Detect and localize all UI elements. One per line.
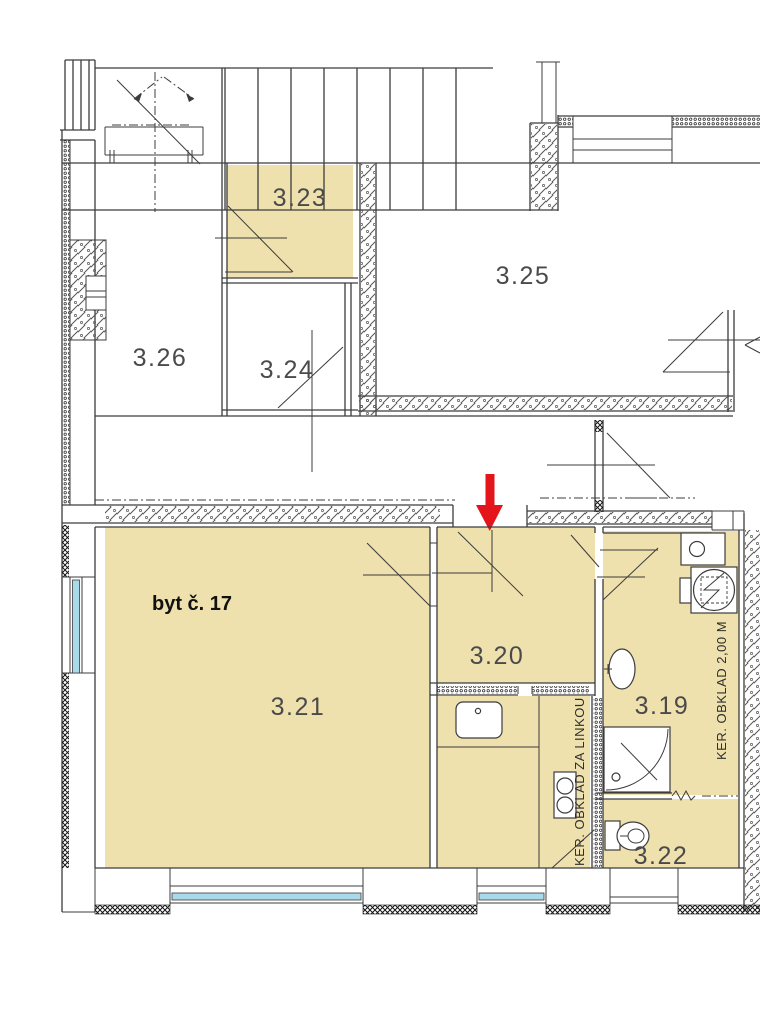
- kitchen-sink: [456, 702, 502, 738]
- vent-circle-icon: [690, 542, 705, 557]
- wall-dark-strip: [678, 905, 760, 914]
- washbasin: [609, 649, 635, 689]
- wall-break: [518, 684, 532, 696]
- wall-dark-strip: [546, 905, 610, 914]
- door-swing-3-24: [278, 330, 343, 472]
- wall-stub: [595, 500, 603, 512]
- insulation-strip: [63, 140, 70, 505]
- door-direction-arrow: [745, 337, 760, 353]
- wall-stub: [595, 420, 603, 432]
- exterior-wall-hatch: [745, 530, 760, 912]
- wall-hatch: [528, 512, 712, 523]
- window-glass: [172, 893, 361, 900]
- bathroom-tiling-note: KER. OBKLAD 2,00 M: [714, 621, 729, 760]
- floor-plan-page: 3.23 3.25 3.26 3.24 3.21 3.20 3.19 3.22 …: [0, 0, 760, 1024]
- insulation-strip: [558, 117, 573, 126]
- insulation-strip: [672, 117, 760, 126]
- room-label-3-20: 3.20: [470, 642, 525, 670]
- kitchen-wall-hatch: [437, 686, 590, 694]
- wall-hatch-block: [531, 124, 557, 210]
- detergent-box: [680, 578, 691, 603]
- room-label-3-26: 3.26: [133, 344, 188, 372]
- room-label-3-22: 3.22: [634, 842, 689, 870]
- red-arrow-marker: [476, 474, 503, 531]
- upper-rooms-walls: [62, 68, 760, 472]
- room-label-3-19: 3.19: [635, 692, 690, 720]
- door-swing-3-25: [663, 312, 760, 372]
- room-3-23-fill: [227, 165, 353, 278]
- wall-dark-strip: [95, 905, 170, 914]
- stair-direction-line: [117, 80, 200, 164]
- room-label-3-23: 3.23: [273, 184, 328, 212]
- shower-drain-icon: [612, 773, 620, 781]
- window-frame: [610, 897, 678, 903]
- room-label-3-24: 3.24: [260, 356, 315, 384]
- window-bay: [573, 116, 672, 163]
- floor-plan-drawing: 3.23 3.25 3.26 3.24 3.21 3.20 3.19 3.22 …: [0, 0, 760, 1024]
- arrow-shaft: [486, 474, 495, 506]
- bottom-wall: [95, 868, 760, 914]
- wall-hatch: [105, 506, 440, 522]
- top-right-wall: [558, 116, 760, 163]
- room-label-3-25: 3.25: [496, 262, 551, 290]
- corridor-door-swing: [547, 433, 670, 498]
- window-glass-left: [73, 580, 80, 673]
- window-glass: [479, 893, 544, 900]
- cooktop-burner-icon: [557, 797, 573, 813]
- tiled-wall-strip: [593, 697, 602, 867]
- left-wall: [62, 130, 106, 912]
- wall-hatch: [359, 397, 732, 410]
- apartment-label: byt č. 17: [152, 593, 232, 615]
- kitchen-tiling-note: KER. OBKLAD ZA LINKOU: [572, 697, 587, 866]
- corridor: [95, 420, 695, 512]
- cooktop-burner-icon: [557, 778, 573, 794]
- wall-hatch: [361, 164, 375, 415]
- flue-recess: [86, 276, 106, 310]
- room-label-3-21: 3.21: [271, 693, 326, 721]
- wall-dark-strip: [363, 905, 477, 914]
- room-3-21-fill: [105, 527, 430, 868]
- wall-dark-strip: [62, 673, 69, 868]
- wall-dark-strip: [62, 525, 69, 577]
- sink-faucet-icon: [475, 708, 480, 713]
